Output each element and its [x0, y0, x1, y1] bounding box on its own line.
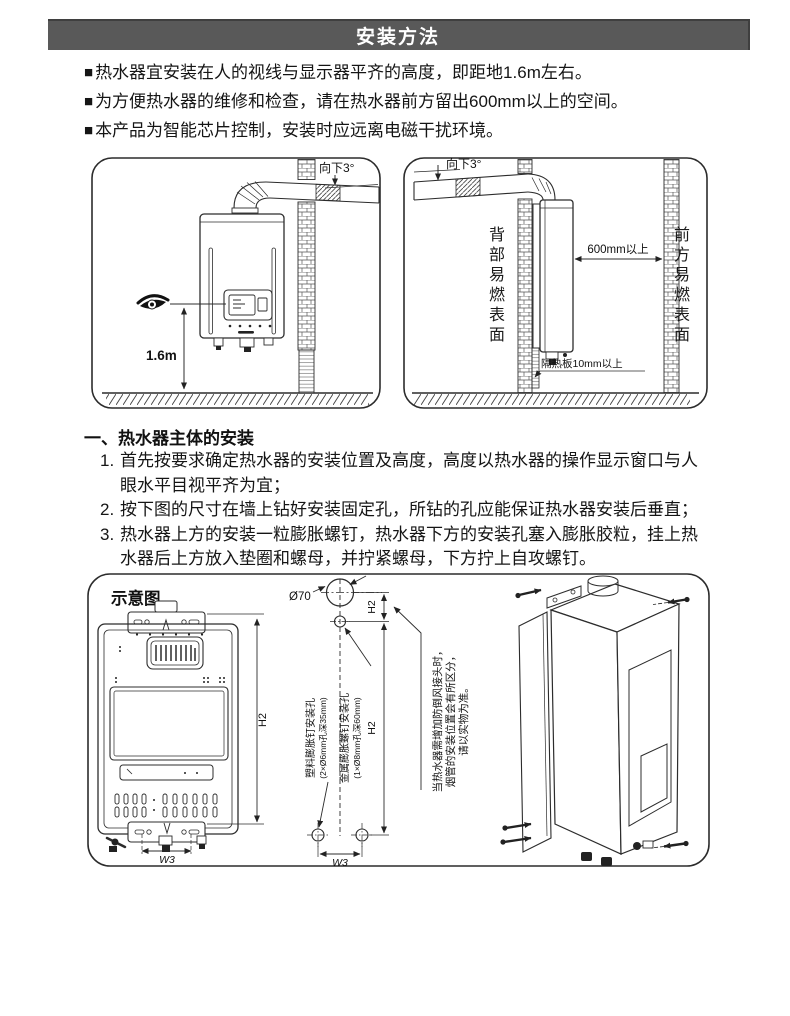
manual-page: 安装方法 ■ 热水器宜安装在人的视线与显示器平齐的高度，即距地1.6m左右。 ■…: [0, 0, 790, 1016]
tilt-angle-label: 向下3°: [319, 160, 355, 175]
front-installation-diagram: 向下3° 1.6m: [88, 152, 386, 414]
heater-front-view: [98, 601, 264, 854]
bullet-item: ■ 为方便热水器的维修和检查，请在热水器前方留出600mm以上的空间。: [84, 87, 744, 116]
side-clearance-diagram: 向下3° 600mm以上 隔热板10mm以上: [400, 152, 712, 414]
flue-note-line1: 当热水器需增加防倒风接头时，: [431, 646, 444, 793]
section-heading: 一、热水器主体的安装: [84, 424, 254, 449]
installation-steps: 1. 首先按要求确定热水器的安装位置及高度，高度以热水器的操作显示窗口与人眼水平…: [100, 449, 704, 572]
h2-top-label: H2: [366, 600, 378, 614]
schematic-title: 示意图: [111, 588, 161, 608]
clearance-label: 600mm以上: [587, 243, 648, 256]
w3-front-label: W3: [159, 854, 175, 866]
back-flammable-surface-label: 背部易燃表面: [486, 226, 502, 346]
plastic-hole-label: 塑料膨胀钉安装孔: [304, 698, 317, 778]
eye-icon: [138, 296, 168, 309]
step-number: 2.: [100, 498, 120, 523]
step-text: 按下图的尺寸在墙上钻好安装固定孔，所钻的孔应能保证热水器安装后垂直；: [120, 498, 704, 523]
tilt-angle-label: 向下3°: [446, 156, 482, 171]
flue-note-line3: 请以实物为准。: [457, 682, 470, 756]
square-bullet-icon: ■: [84, 116, 93, 145]
metal-hole-spec-label: (1×Ø8mm孔深60mm): [352, 697, 362, 779]
step-text: 首先按要求确定热水器的安装位置及高度，高度以热水器的操作显示窗口与人眼水平目视平…: [120, 449, 704, 498]
step-item: 2. 按下图的尺寸在墙上钻好安装固定孔，所钻的孔应能保证热水器安装后垂直；: [100, 498, 704, 523]
step-number: 1.: [100, 449, 120, 498]
bullet-text: 本产品为智能芯片控制，安装时应远离电磁干扰环境。: [95, 116, 503, 145]
intro-bullets: ■ 热水器宜安装在人的视线与显示器平齐的高度，即距地1.6m左右。 ■ 为方便热…: [84, 58, 744, 145]
bullet-item: ■ 本产品为智能芯片控制，安装时应远离电磁干扰环境。: [84, 116, 744, 145]
bullet-item: ■ 热水器宜安装在人的视线与显示器平齐的高度，即距地1.6m左右。: [84, 58, 744, 87]
bullet-text: 热水器宜安装在人的视线与显示器平齐的高度，即距地1.6m左右。: [95, 58, 592, 87]
eye-height-label: 1.6m: [146, 348, 177, 363]
plastic-hole-spec-label: (2×Ø6mm孔深35mm): [318, 697, 328, 779]
insulation-board-label: 隔热板10mm以上: [541, 357, 623, 370]
mounting-schematic-diagram: 示意图: [85, 570, 713, 870]
square-bullet-icon: ■: [84, 87, 93, 116]
flue-note-line2: 烟管的安装位置会有所区分，: [444, 651, 457, 788]
front-flammable-surface-label: 前方易燃表面: [671, 226, 687, 346]
flue-diameter-label: Ø70: [289, 591, 311, 603]
square-bullet-icon: ■: [84, 58, 93, 87]
page-title: 安装方法: [356, 22, 440, 49]
step-number: 3.: [100, 523, 120, 572]
metal-hole-label: 金属膨胀螺钉安装孔: [338, 693, 351, 783]
section-header-bar: 安装方法: [48, 19, 750, 50]
w3-template-label: W3: [332, 857, 348, 869]
h2-front-label: H2: [257, 713, 269, 727]
bullet-text: 为方便热水器的维修和检查，请在热水器前方留出600mm以上的空间。: [95, 87, 628, 116]
step-text: 热水器上方的安装一粒膨胀螺钉，热水器下方的安装孔塞入膨胀胶粒，挂上热水器后上方放…: [120, 523, 704, 572]
heater-3d-view: [519, 576, 679, 866]
front-diagram-lines: [92, 158, 380, 408]
step-item: 3. 热水器上方的安装一粒膨胀螺钉，热水器下方的安装孔塞入膨胀胶粒，挂上热水器后…: [100, 523, 704, 572]
step-item: 1. 首先按要求确定热水器的安装位置及高度，高度以热水器的操作显示窗口与人眼水平…: [100, 449, 704, 498]
h2-main-label: H2: [366, 721, 378, 735]
side-diagram-lines: [404, 158, 707, 408]
